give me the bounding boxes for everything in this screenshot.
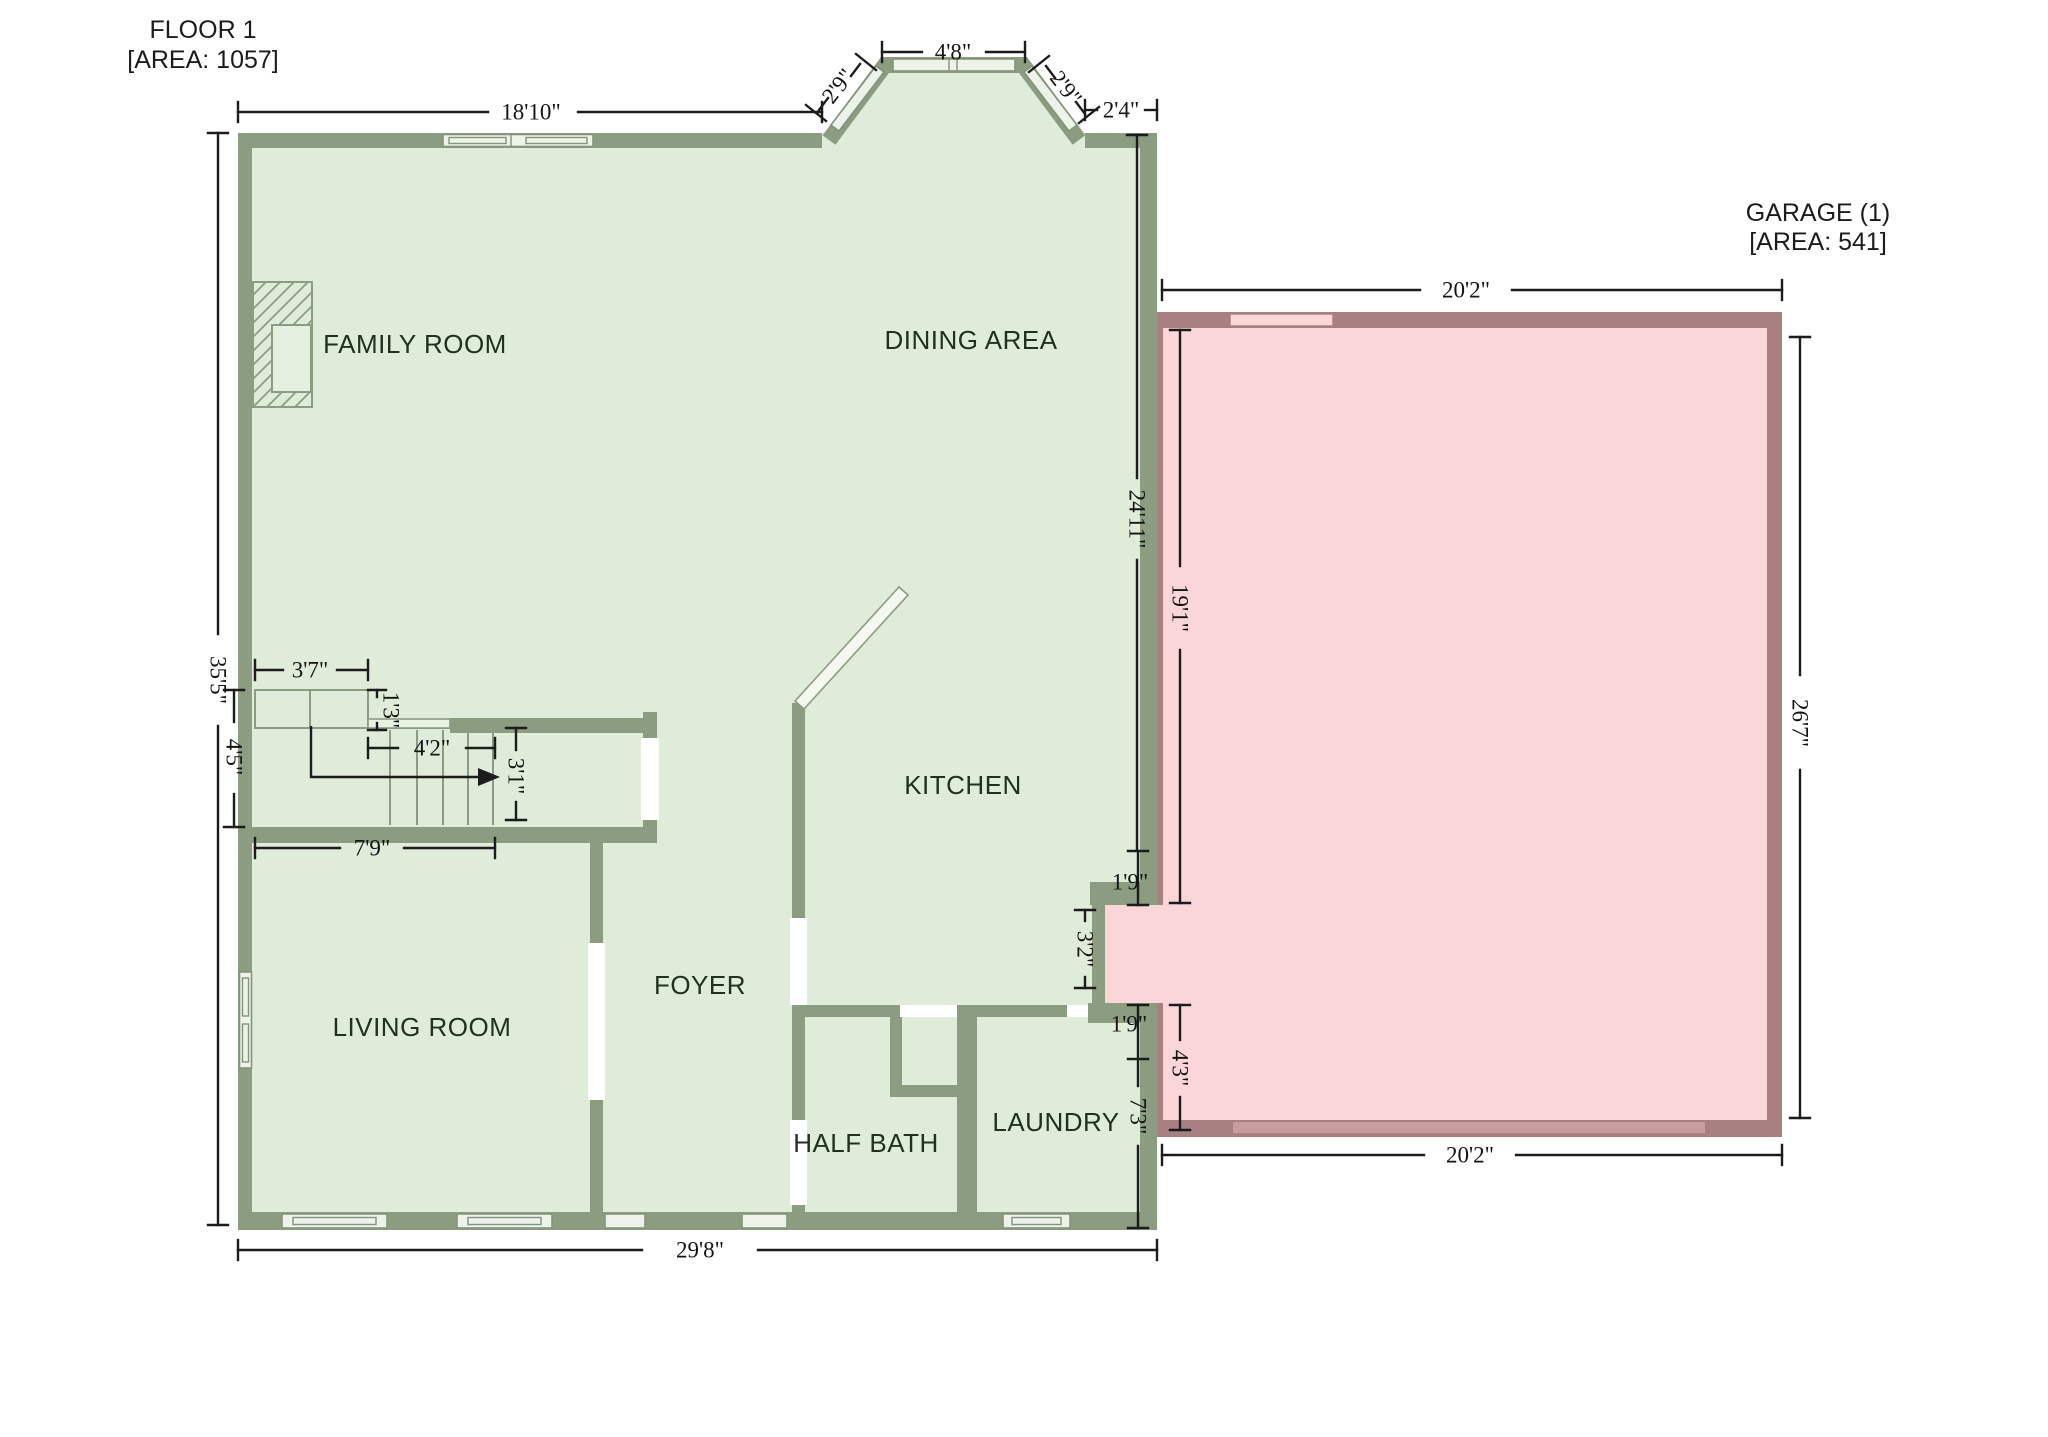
dim-stair-run-label: 4'2" [414, 736, 451, 761]
wall-stair-top [450, 718, 657, 733]
dim-stair-height-label: 4'5" [222, 739, 247, 776]
dim-top-right-label: 2'4" [1103, 98, 1140, 123]
garage-footprint [1100, 312, 1782, 1137]
wall-laundry-top [977, 1005, 1067, 1017]
dim-top-right: 2'4" [1085, 98, 1157, 123]
dim-bottom-wall: 29'8" [238, 1238, 1157, 1263]
label-kitchen: KITCHEN [904, 770, 1022, 800]
wall-nook-horizontal [890, 1085, 957, 1097]
window-bottom-1 [282, 1214, 387, 1228]
dim-bottom-wall-label: 29'8" [676, 1238, 724, 1263]
garage-title: GARAGE (1) [1746, 199, 1890, 227]
door-foyer-kitchen [790, 918, 807, 1005]
dim-laundry-right-label: 7'3" [1126, 1098, 1151, 1135]
door-nook [900, 1005, 957, 1017]
label-dining-area: DINING AREA [884, 325, 1057, 355]
window-top-wall [443, 135, 593, 147]
garage-wall-left-lining-upper [1157, 328, 1163, 905]
floor1-title: FLOOR 1 [150, 16, 257, 44]
window-bottom-laundry [1003, 1214, 1070, 1228]
floor1-area: [AREA: 1057] [127, 46, 278, 74]
garage-fill [1157, 312, 1782, 1137]
label-half-bath: HALF BATH [793, 1128, 939, 1158]
door-living-foyer [588, 943, 605, 1100]
dim-garage-right: 26'7" [1788, 337, 1813, 1118]
wall-stair-bottom [252, 827, 657, 843]
floorplan-canvas: 18'10" 4'8" 2'9" 2'9" 2'4" [0, 0, 2048, 1437]
dim-garage-right-label: 26'7" [1788, 699, 1813, 747]
window-bottom-4 [742, 1214, 787, 1228]
garage-door-notch-fill [1100, 905, 1162, 1003]
dim-door-below-label: 1'9" [1111, 1012, 1148, 1037]
floor1-footprint [238, 57, 1157, 1230]
dim-stair-landing-label: 3'7" [292, 658, 329, 683]
wall-halfbath-top [792, 1005, 900, 1017]
label-foyer: FOYER [654, 970, 746, 1000]
dim-bay-top-label: 4'8" [935, 40, 972, 65]
dim-left-wall-label: 35'5" [206, 656, 231, 704]
floorplan-page: 18'10" 4'8" 2'9" 2'9" 2'4" [0, 0, 2048, 1437]
label-family-room: FAMILY ROOM [323, 329, 507, 359]
fireplace-firebox [272, 325, 311, 392]
dim-stair-wall-label: 7'9" [354, 836, 391, 861]
dim-floor-right-label: 24'11" [1125, 490, 1150, 549]
wall-kitchen-foyer [792, 703, 805, 918]
floor1-fill [238, 133, 1157, 1230]
label-laundry: LAUNDRY [992, 1107, 1119, 1137]
dim-stair-rail-label: 1'3" [379, 692, 404, 729]
dim-door-opening-label: 3'2" [1073, 931, 1098, 968]
dim-garage-top: 20'2" [1162, 278, 1782, 303]
wall-stair-door-top-block [643, 712, 657, 738]
garage-door-strip [1233, 1122, 1705, 1133]
window-bottom-2 [457, 1214, 552, 1228]
garage-wall-right [1767, 312, 1782, 1137]
dim-top-wall: 18'10" [238, 100, 822, 125]
dim-top-wall-label: 18'10" [501, 100, 561, 125]
dim-garage-bottom-label: 20'2" [1446, 1143, 1494, 1168]
window-left-wall [240, 972, 252, 1068]
dim-garage-bottom: 20'2" [1162, 1143, 1782, 1168]
label-living-room: LIVING ROOM [333, 1012, 512, 1042]
dim-garage-left-label: 19'1" [1168, 584, 1193, 632]
door-laundry [1067, 1005, 1088, 1017]
dim-garage-top-label: 20'2" [1442, 278, 1490, 303]
garage-window [1230, 314, 1333, 326]
garage-wall-left-lining-lower [1157, 1003, 1163, 1120]
dim-garage-door-side-label: 4'3" [1168, 1050, 1193, 1087]
dim-left-wall: 35'5" [206, 133, 231, 1225]
garage-area: [AREA: 541] [1749, 228, 1887, 256]
door-stairs [641, 738, 659, 820]
dim-door-above-label: 1'9" [1112, 870, 1149, 895]
fireplace [253, 282, 312, 407]
dim-stair-width-label: 3'1" [504, 758, 529, 795]
wall-stair-door-bottom-block [643, 820, 657, 843]
wall-bath-laundry-divider [957, 1005, 977, 1212]
window-bottom-3 [605, 1214, 645, 1228]
